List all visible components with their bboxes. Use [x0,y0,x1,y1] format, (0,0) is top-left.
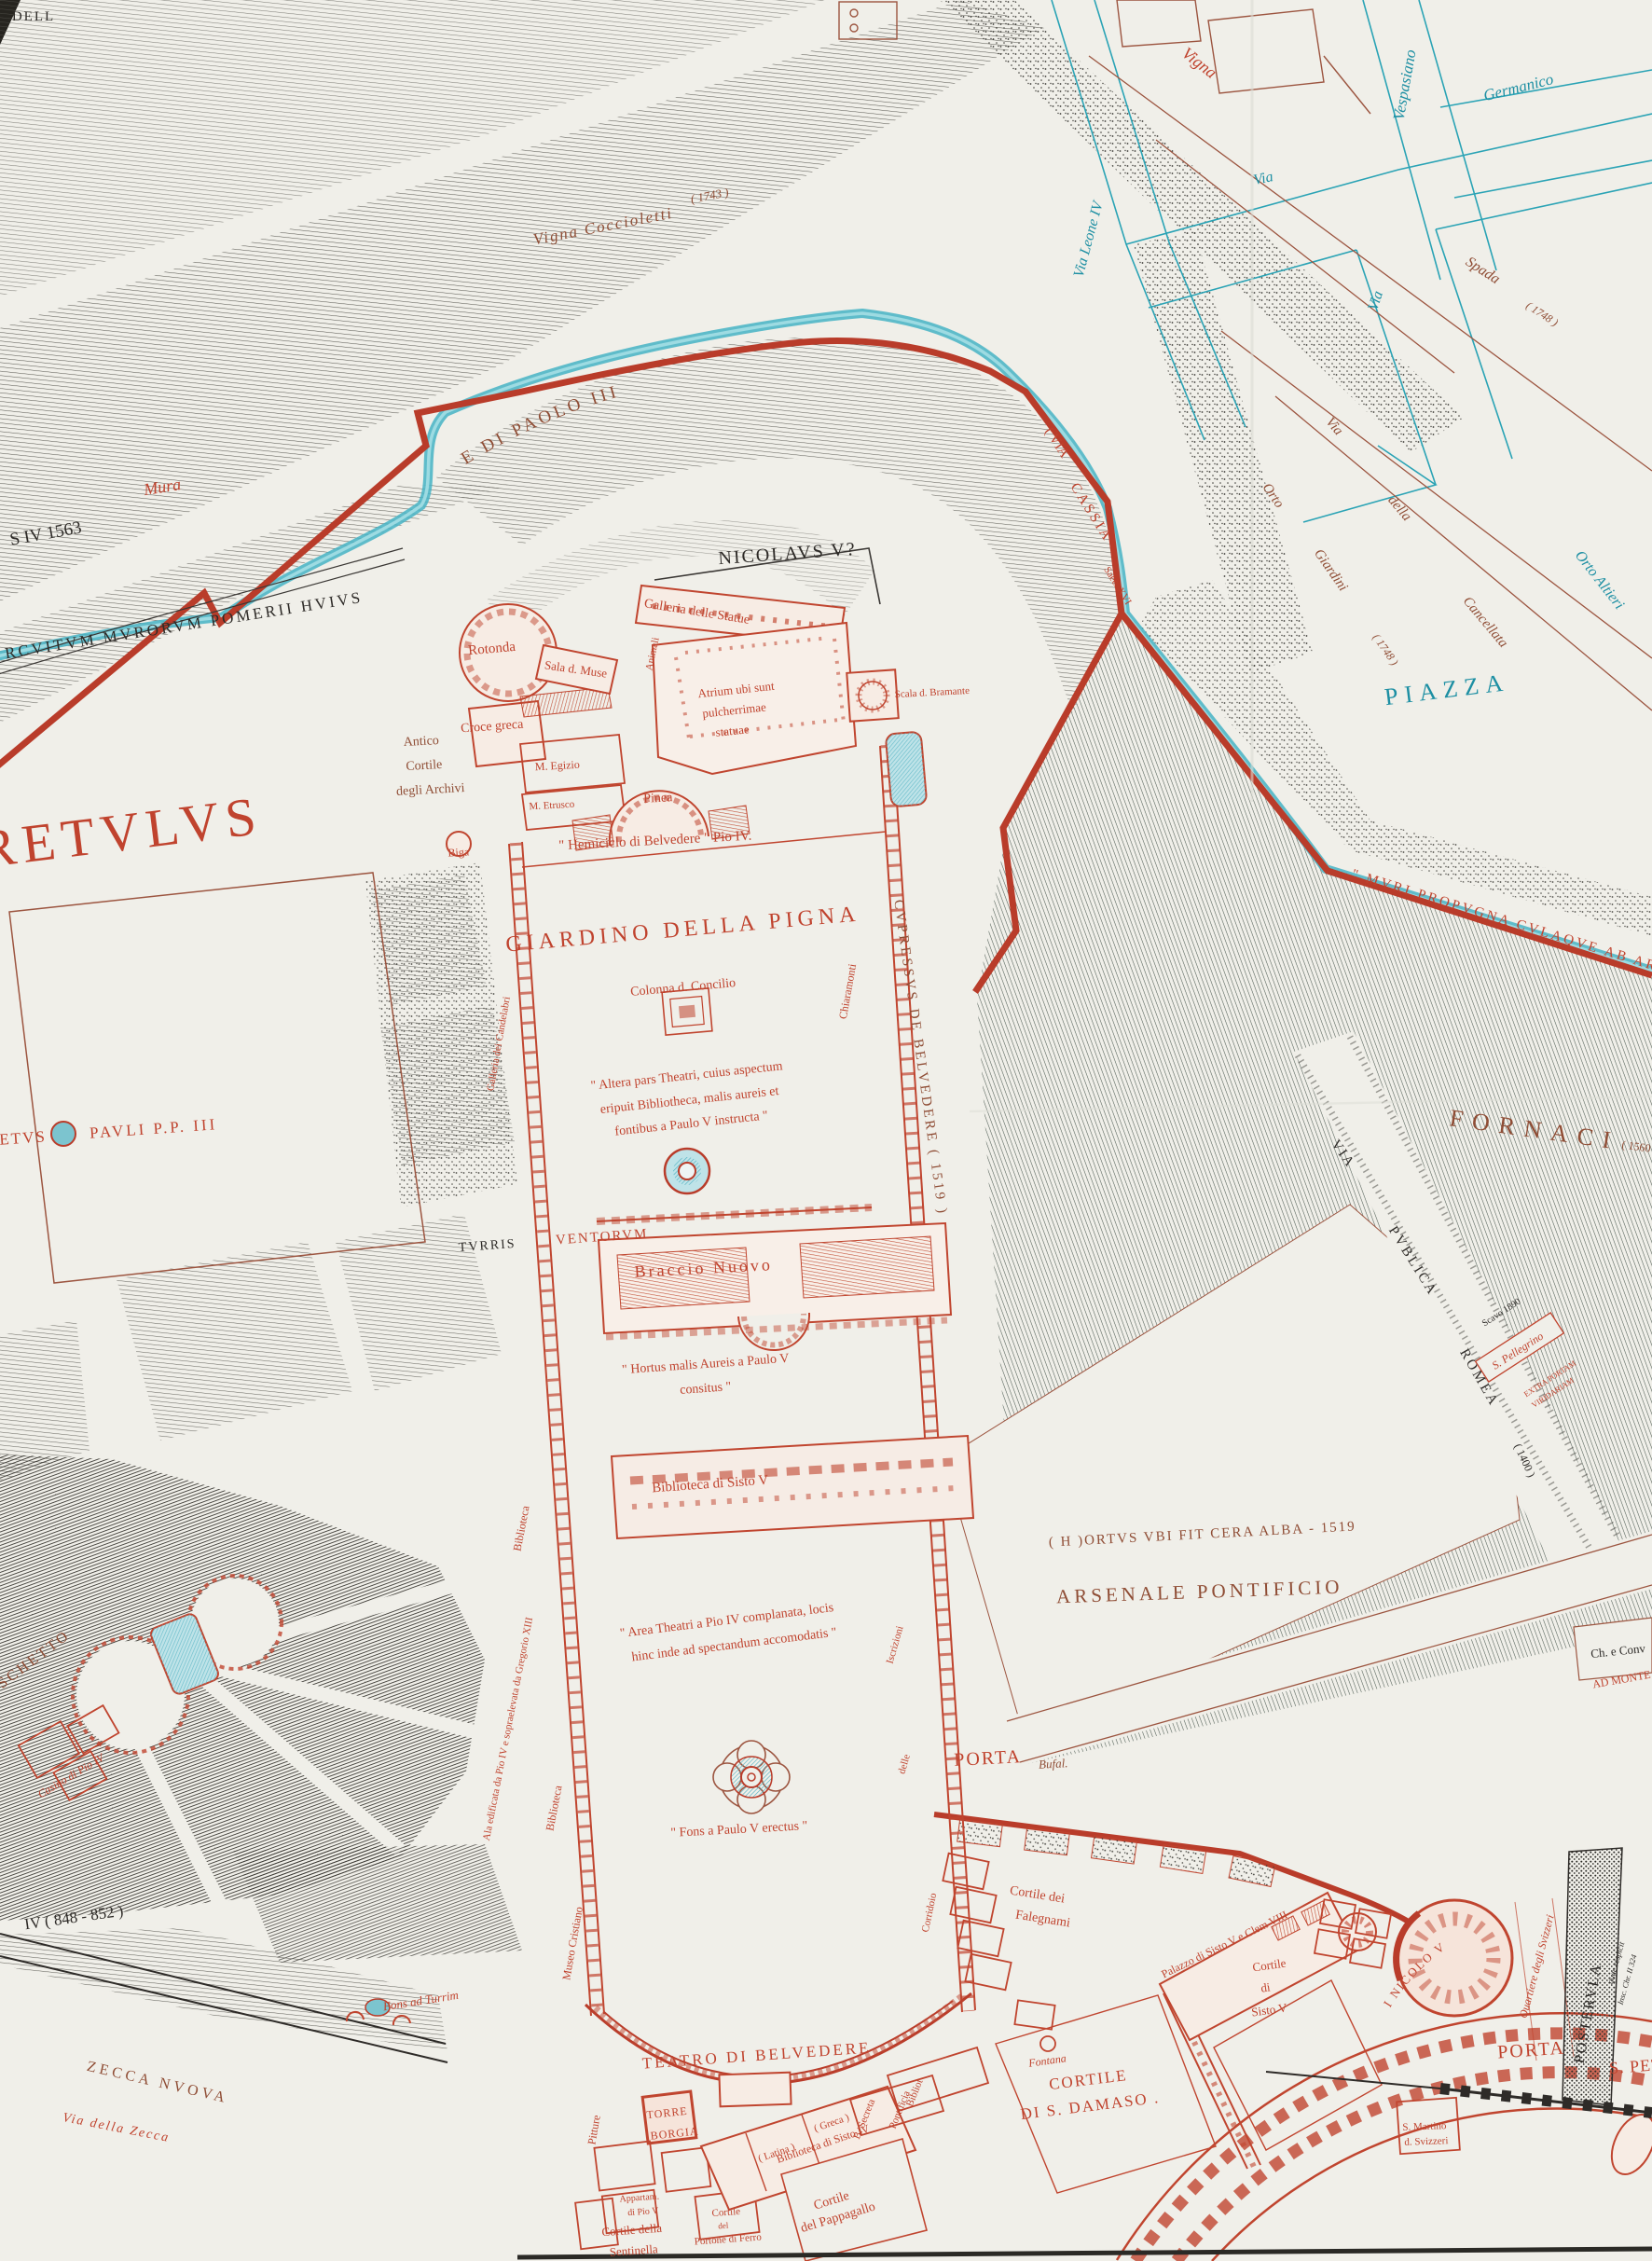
label-altera-3: fontibus a Paulo V instructa " [614,1109,769,1138]
label-s-martino-1: S. Martino [1402,2120,1447,2133]
pigna-fountain-core [679,1163,695,1179]
label-edge-fragment: DELL [12,9,55,24]
vespasiano-lines [1363,0,1496,280]
fons-paulo-fountain [713,1741,790,1813]
label-pitture: Pitture [585,2114,602,2145]
label-m-etrusco: M. Etrusco [529,799,575,813]
label-sentinella-1: Cortile della [601,2221,663,2239]
label-spada-year: ( 1748 ) [1523,298,1560,328]
label-cancellata-w: Cancellata [1460,594,1511,651]
garden-fountain [51,1122,76,1146]
label-scala-bramante: Scala d. Bramante [894,685,970,700]
street-corner [1303,446,1436,522]
label-via-zecca: Via della Zecca [62,2111,172,2145]
label-appartam-1: Appartam. [619,2192,659,2205]
label-portone-1: Cortile [711,2206,740,2219]
label-piazza: PIAZZA [1383,669,1510,710]
scala-bramante-tower [847,669,899,722]
label-m-egizio: M. Egizio [534,758,580,773]
label-colonna: Colonna d. Concilio [630,976,737,1000]
label-museo-cristiano: Museo Cristiano [559,1906,585,1981]
vatican-historical-map: DELL S IV 1563 RCVITVM MVRORVM POMERII H… [0,0,1652,2261]
label-iscrizioni: Iscrizioni [885,1625,906,1665]
label-germanico: Germanico [1481,70,1555,104]
label-appartam-2: di Pio V [627,2206,660,2218]
label-pinea: Pinea [643,791,674,807]
label-hortus-2: consitus " [680,1380,732,1398]
terrain-ramparts [0,0,1652,2062]
teatro-apse [719,2073,791,2107]
label-via-1: Via [1252,169,1274,188]
fontana-pool-hatch [886,731,928,807]
label-delle: delle [896,1753,912,1775]
map-canvas: DELL S IV 1563 RCVITVM MVRORVM POMERII H… [0,0,1652,2261]
label-falegnami-1: Cortile dei [1009,1883,1066,1906]
label-s-martino-2: d. Svizzeri [1404,2135,1448,2148]
label-corridoio: Corridoio [920,1892,940,1934]
label-s-pet: S. PET [1608,2055,1652,2077]
label-vespasiano: Vespasiano [1390,48,1420,122]
label-porta-bufal: PORTA [954,1746,1023,1771]
label-antico-3: degli Archivi [396,781,465,799]
garden-square [9,873,425,1283]
label-porta: PORTA [1497,2038,1566,2063]
label-quartiere: Quartiere degli Svizzeri [1517,1913,1557,2020]
label-ala-gregorio: Ala edificata da Pio IV e sopraelevata d… [481,1616,535,1841]
label-spada: Spada [1463,254,1503,287]
label-retulus: RETVLVS [0,785,266,880]
label-via-leone-iv: Via Leone IV [1071,198,1108,279]
label-via-2: Via [1365,289,1386,312]
label-fons-paulo: " Fons a Paulo V erectus " [670,1819,808,1841]
label-bufal: Bufal. [1039,1756,1068,1772]
label-giardino-pigna: GIARDINO DELLA PIGNA [504,902,860,957]
label-antico-1: Antico [403,734,439,750]
label-vigna: Vigna [1178,44,1220,82]
label-zecca: ZECCA NVOVA [85,2059,229,2106]
label-biblioteca-a: Biblioteca [510,1504,531,1552]
label-etus: ETVS [0,1127,47,1148]
label-biga: Biga [447,845,470,859]
label-giardini-w: Giardini [1311,546,1350,594]
label-pauli: PAVLI P.P. III [89,1115,217,1142]
label-turris: TVRRIS [458,1237,516,1255]
west-corridor [509,842,604,2016]
label-hortus-1: " Hortus malis Aureis a Paulo V [622,1352,790,1377]
label-antico-2: Cortile [406,758,443,774]
label-chiaramonti: Chiaramonti [836,962,859,1020]
label-giardini-year: ( 1748 ) [1370,631,1401,668]
label-via-w: Via [1323,415,1346,438]
label-biblioteca-b: Biblioteca [543,1784,564,1832]
neat-line-bottom [517,2249,1652,2257]
woods-triangle-south [233,1844,522,1963]
braccio-hall-east [800,1236,934,1298]
label-portone-3: Portone di Ferro [694,2231,762,2247]
label-portone-2: del [718,2221,729,2231]
label-falegnami-2: Falegnami [1014,1909,1071,1931]
